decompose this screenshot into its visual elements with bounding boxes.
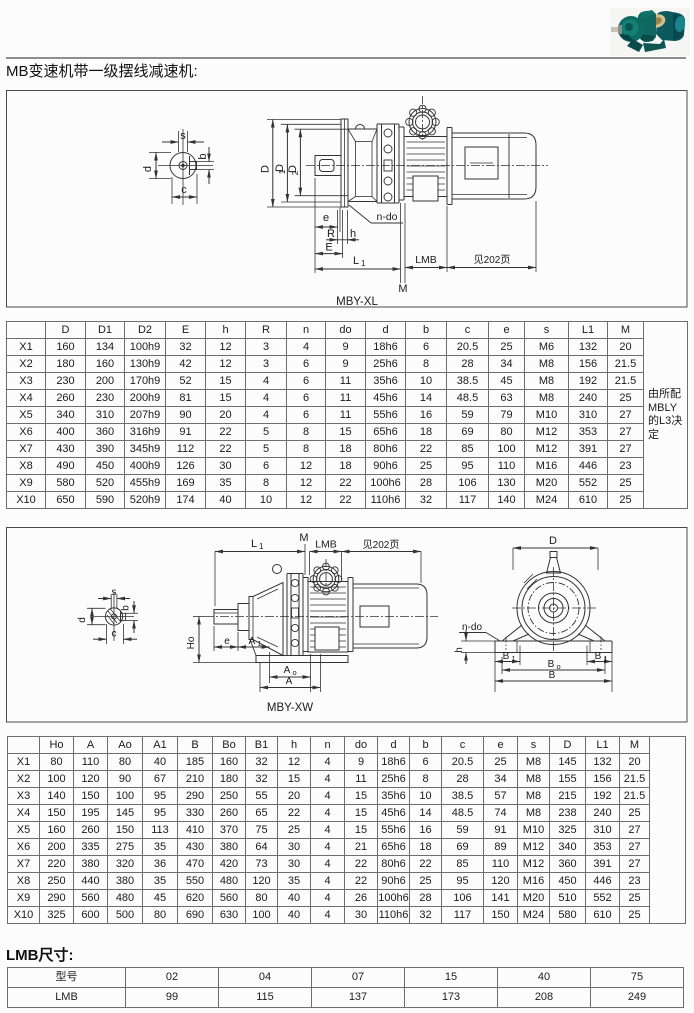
svg-text:b: b <box>197 153 209 159</box>
svg-text:E: E <box>325 242 332 254</box>
svg-text:LMB: LMB <box>315 539 337 551</box>
svg-text:Ho: Ho <box>186 636 197 649</box>
svg-text:o: o <box>557 662 561 671</box>
svg-text:L: L <box>353 255 359 267</box>
svg-text:e: e <box>224 636 230 647</box>
svg-text:B: B <box>595 651 602 662</box>
svg-text:b: b <box>121 605 132 611</box>
svg-text:D: D <box>260 165 272 173</box>
svg-text:A: A <box>249 636 256 647</box>
svg-text:1: 1 <box>258 639 262 648</box>
svg-text:d: d <box>142 166 154 172</box>
svg-text:1: 1 <box>278 169 287 174</box>
svg-text:2: 2 <box>291 170 300 175</box>
svg-text:D: D <box>549 535 557 547</box>
svg-text:L: L <box>251 538 257 550</box>
svg-text:n-do: n-do <box>376 211 397 223</box>
svg-text:B: B <box>548 659 555 670</box>
svg-text:e: e <box>323 212 329 224</box>
svg-text:见202页: 见202页 <box>474 254 511 266</box>
svg-text:M: M <box>299 532 308 544</box>
svg-text:LMB: LMB <box>415 254 437 266</box>
svg-text:h: h <box>350 228 356 240</box>
svg-text:MBY-XW: MBY-XW <box>267 702 313 714</box>
svg-text:A: A <box>286 676 293 687</box>
svg-text:B: B <box>549 670 556 681</box>
svg-text:M: M <box>398 283 407 295</box>
svg-text:B: B <box>503 651 510 662</box>
svg-text:A: A <box>284 665 291 676</box>
svg-text:MBY-XL: MBY-XL <box>336 296 378 308</box>
svg-text:R: R <box>327 228 335 240</box>
svg-text:1: 1 <box>512 654 516 663</box>
svg-text:见202页: 见202页 <box>363 539 400 551</box>
svg-text:c: c <box>181 184 187 196</box>
svg-text:1: 1 <box>259 542 264 551</box>
svg-text:s: s <box>180 130 186 142</box>
svg-text:o: o <box>293 668 297 677</box>
svg-text:1: 1 <box>604 654 608 663</box>
svg-text:1: 1 <box>361 259 366 268</box>
svg-text:d: d <box>77 617 88 623</box>
svg-text:c: c <box>112 629 117 640</box>
svg-text:h: h <box>454 647 465 653</box>
svg-text:s: s <box>112 587 117 598</box>
svg-text:n-do: n-do <box>462 622 482 633</box>
